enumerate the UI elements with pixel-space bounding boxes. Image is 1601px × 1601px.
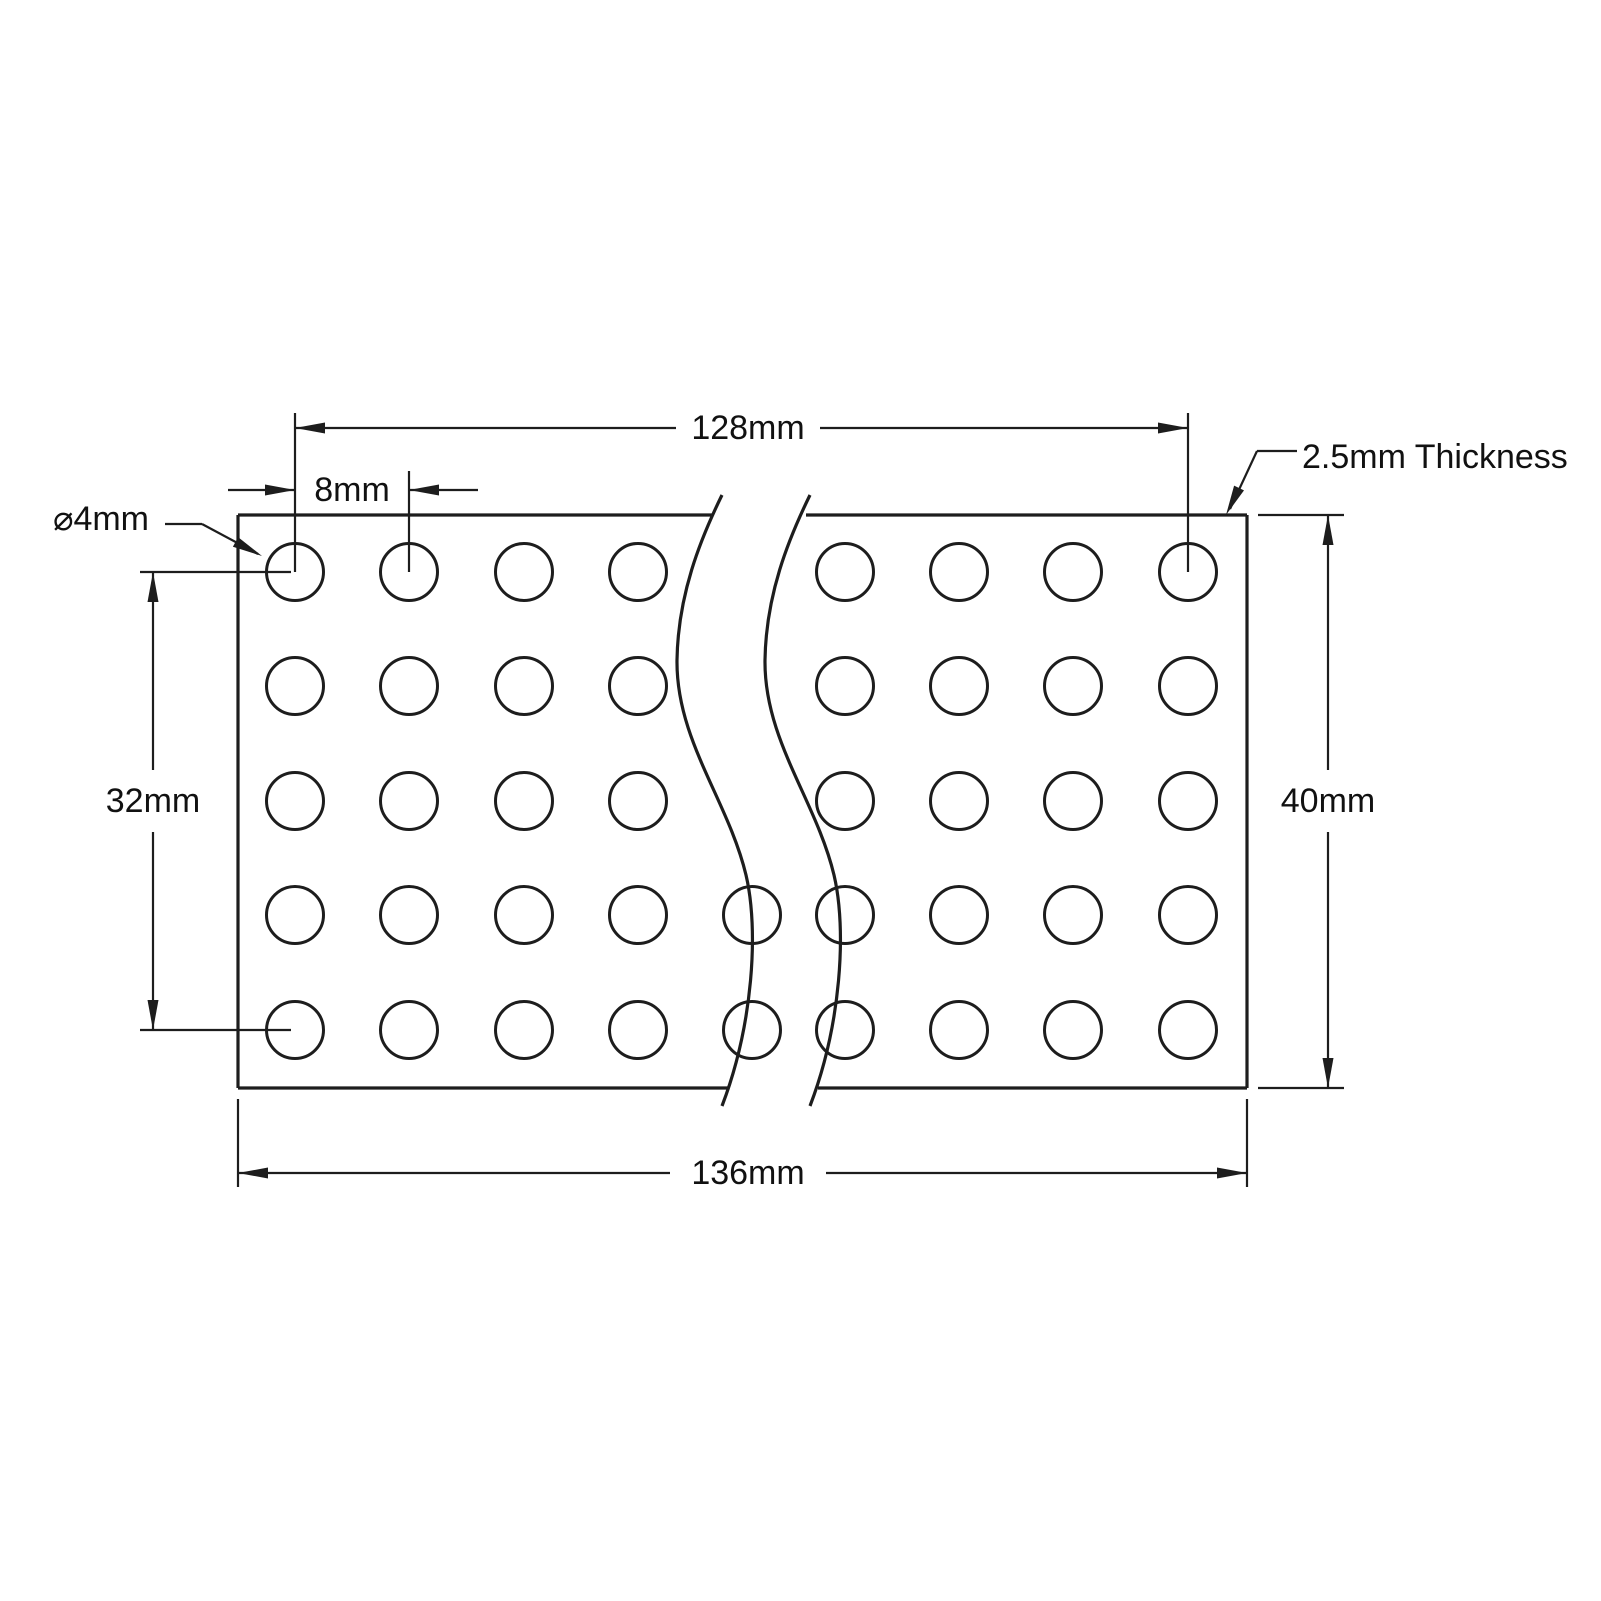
hole	[931, 887, 988, 944]
dim-label-thickness: 2.5mm Thickness	[1302, 438, 1568, 476]
arrowhead-right	[1217, 1168, 1247, 1179]
arrowhead-up	[148, 572, 159, 602]
break-line-left	[677, 495, 752, 1106]
hole	[381, 773, 438, 830]
hole	[610, 1002, 667, 1059]
hole	[817, 887, 874, 944]
dim-label-40mm: 40mm	[1281, 782, 1375, 820]
hole	[817, 773, 874, 830]
hole	[381, 658, 438, 715]
dim-label-8mm: 8mm	[314, 471, 390, 509]
hole	[931, 544, 988, 601]
arrowhead-down	[1323, 1058, 1334, 1088]
hole	[267, 773, 324, 830]
hole	[496, 887, 553, 944]
hole	[1045, 1002, 1102, 1059]
arrowhead-left	[238, 1168, 268, 1179]
callout-hole-diameter: ⌀4mm	[53, 500, 262, 556]
hole	[381, 887, 438, 944]
hole	[496, 658, 553, 715]
arrowhead-down	[148, 1000, 159, 1030]
hole	[496, 1002, 553, 1059]
dimension-136mm: 136mm	[238, 1099, 1247, 1192]
technical-drawing: 128mm 8mm ⌀4mm 32mm	[0, 0, 1601, 1601]
callout-thickness: 2.5mm Thickness	[1226, 438, 1568, 515]
hole	[817, 1002, 874, 1059]
hole	[610, 544, 667, 601]
dim-label-136mm: 136mm	[691, 1154, 804, 1192]
hole	[381, 1002, 438, 1059]
hole	[1045, 773, 1102, 830]
drawing-canvas: 128mm 8mm ⌀4mm 32mm	[0, 0, 1601, 1601]
arrowhead-right	[1158, 423, 1188, 434]
arrowhead-up	[1323, 515, 1334, 545]
dim-label-hole-diameter: ⌀4mm	[53, 500, 149, 538]
dim-label-32mm: 32mm	[106, 782, 200, 820]
dim-label-128mm: 128mm	[691, 409, 804, 447]
hole	[496, 544, 553, 601]
hole	[817, 544, 874, 601]
hole	[267, 658, 324, 715]
hole	[1045, 887, 1102, 944]
hole	[1045, 658, 1102, 715]
hole	[1160, 773, 1217, 830]
arrowhead-left	[409, 485, 439, 496]
arrowhead-left	[295, 423, 325, 434]
hole	[1160, 658, 1217, 715]
hole	[931, 658, 988, 715]
hole	[267, 887, 324, 944]
hole	[1160, 887, 1217, 944]
dimension-8mm: 8mm	[228, 471, 478, 572]
hole	[610, 658, 667, 715]
hole	[817, 658, 874, 715]
dimension-40mm: 40mm	[1258, 515, 1375, 1088]
hole	[496, 773, 553, 830]
hole	[1045, 544, 1102, 601]
arrowhead-right	[265, 485, 295, 496]
dimension-32mm: 32mm	[106, 572, 291, 1030]
hole-partial	[724, 1002, 781, 1059]
hole	[610, 887, 667, 944]
hole	[931, 773, 988, 830]
hole-grid	[267, 544, 1217, 1059]
hole	[1160, 1002, 1217, 1059]
hole	[931, 1002, 988, 1059]
leader-arrowhead	[1226, 486, 1244, 515]
hole	[610, 773, 667, 830]
